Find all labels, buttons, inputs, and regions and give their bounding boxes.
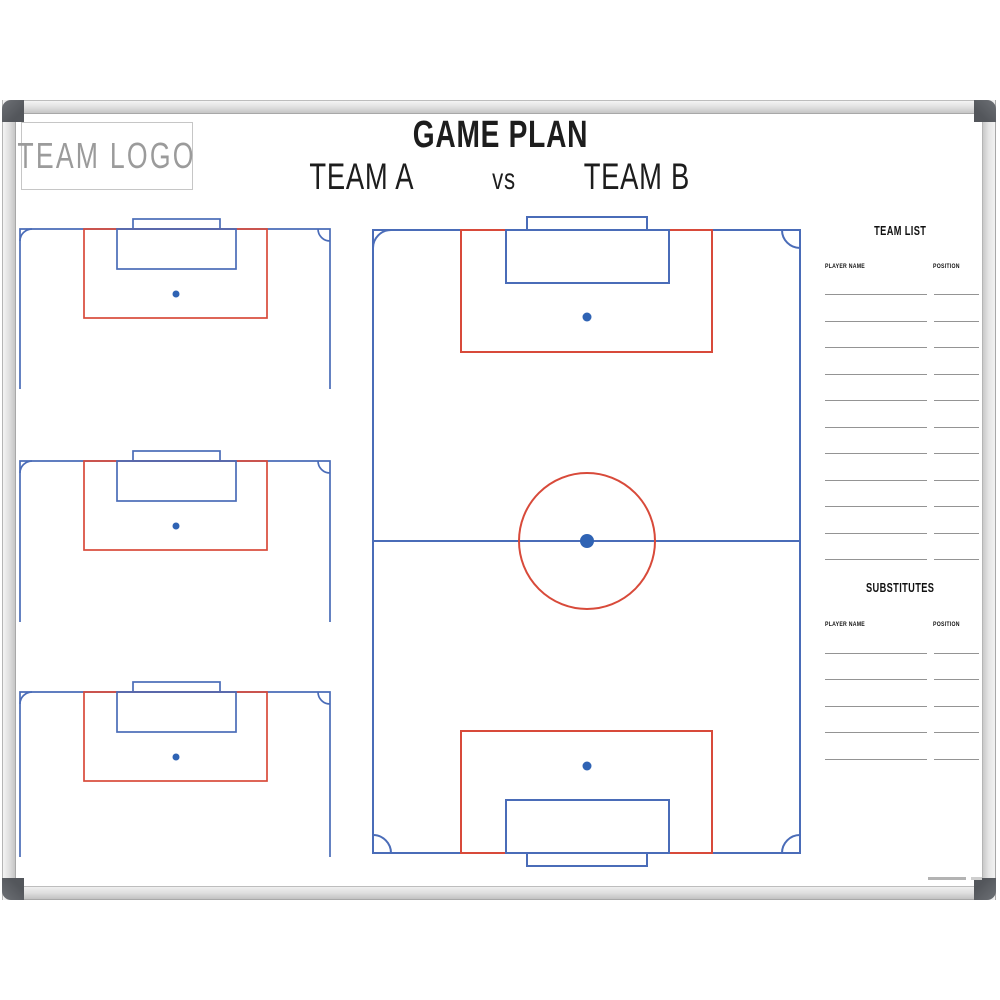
corner-arc (20, 692, 32, 704)
team-list-row (825, 454, 979, 481)
goal-area-bottom (506, 800, 669, 853)
corner-arc (20, 229, 32, 241)
goal-area-top (506, 230, 669, 283)
team-list-row (825, 507, 979, 534)
team-list-rows (825, 269, 979, 561)
corner-arc (20, 461, 32, 473)
corner-arc (318, 229, 330, 241)
frame-corner-cap-bottom-left (2, 878, 24, 900)
goal-bottom (527, 853, 647, 866)
penalty-area-top (461, 230, 712, 352)
team-list-row (825, 375, 979, 402)
team-list-title: TEAM LIST (815, 224, 985, 238)
penalty-area (84, 461, 267, 550)
penalty-spot-bottom (583, 762, 592, 771)
team-logo-box: TEAM LOGO (21, 122, 193, 190)
substitute-row (825, 680, 979, 707)
goal (133, 219, 220, 229)
corner-arc (318, 692, 330, 704)
team-list-row (825, 401, 979, 428)
mini-pitch-diagram-3 (20, 682, 330, 857)
substitute-row (825, 707, 979, 734)
position-line (934, 759, 979, 760)
pitch-boundary (20, 229, 330, 389)
goal (133, 682, 220, 692)
team-list-row (825, 348, 979, 375)
pitch-boundary (20, 692, 330, 857)
center-circle (519, 473, 655, 609)
team-b-label: TEAM B (584, 156, 690, 198)
mini-pitch-diagram-1 (20, 219, 330, 389)
team-list-row (825, 295, 979, 322)
corner-arc (373, 230, 391, 248)
team-list-row (825, 481, 979, 508)
team-list-row (825, 269, 979, 296)
penalty-area (84, 692, 267, 781)
player-name-line (825, 559, 927, 560)
penalty-spot-top (583, 313, 592, 322)
fine-print-mark (928, 877, 966, 880)
team-list-row (825, 322, 979, 349)
frame-bottom-rail (2, 886, 996, 900)
corner-arc (373, 835, 391, 853)
mini-pitch-diagram-2 (20, 451, 330, 622)
frame-left-rail (2, 100, 16, 900)
frame-right-rail (982, 100, 996, 900)
goal-top (527, 217, 647, 230)
team-list-row (825, 534, 979, 561)
team-list-row (825, 428, 979, 455)
matchup-row: TEAM A vs TEAM B (255, 156, 745, 198)
pitch-boundary (373, 230, 800, 853)
penalty-spot (173, 754, 180, 761)
team-logo-text: TEAM LOGO (18, 135, 196, 177)
substitute-row (825, 627, 979, 654)
team-a-label: TEAM A (310, 156, 415, 198)
main-pitch-diagram (373, 217, 800, 866)
frame-corner-cap-bottom-right (974, 878, 996, 900)
center-spot (580, 534, 594, 548)
penalty-spot (173, 291, 180, 298)
corner-arc (782, 230, 800, 248)
corner-arc (318, 461, 330, 473)
substitute-row (825, 733, 979, 760)
goal-area (117, 229, 236, 269)
corner-arc (782, 835, 800, 853)
goal-area (117, 461, 236, 501)
position-line (934, 559, 979, 560)
pitch-boundary (20, 461, 330, 622)
page-title: GAME PLAN (300, 114, 700, 157)
whiteboard: TEAM LOGO GAME PLAN TEAM A vs TEAM B (0, 0, 1000, 1000)
penalty-area-bottom (461, 731, 712, 853)
fine-print-mark (971, 877, 982, 880)
substitutes-title: SUBSTITUTES (815, 581, 985, 595)
substitute-row (825, 654, 979, 681)
penalty-area (84, 229, 267, 318)
penalty-spot (173, 523, 180, 530)
player-name-line (825, 759, 927, 760)
frame-corner-cap-top-right (974, 100, 996, 122)
goal-area (117, 692, 236, 732)
vs-label: vs (492, 163, 516, 197)
frame-corner-cap-top-left (2, 100, 24, 122)
frame-top-rail (2, 100, 996, 114)
substitutes-rows (825, 627, 979, 760)
goal (133, 451, 220, 461)
